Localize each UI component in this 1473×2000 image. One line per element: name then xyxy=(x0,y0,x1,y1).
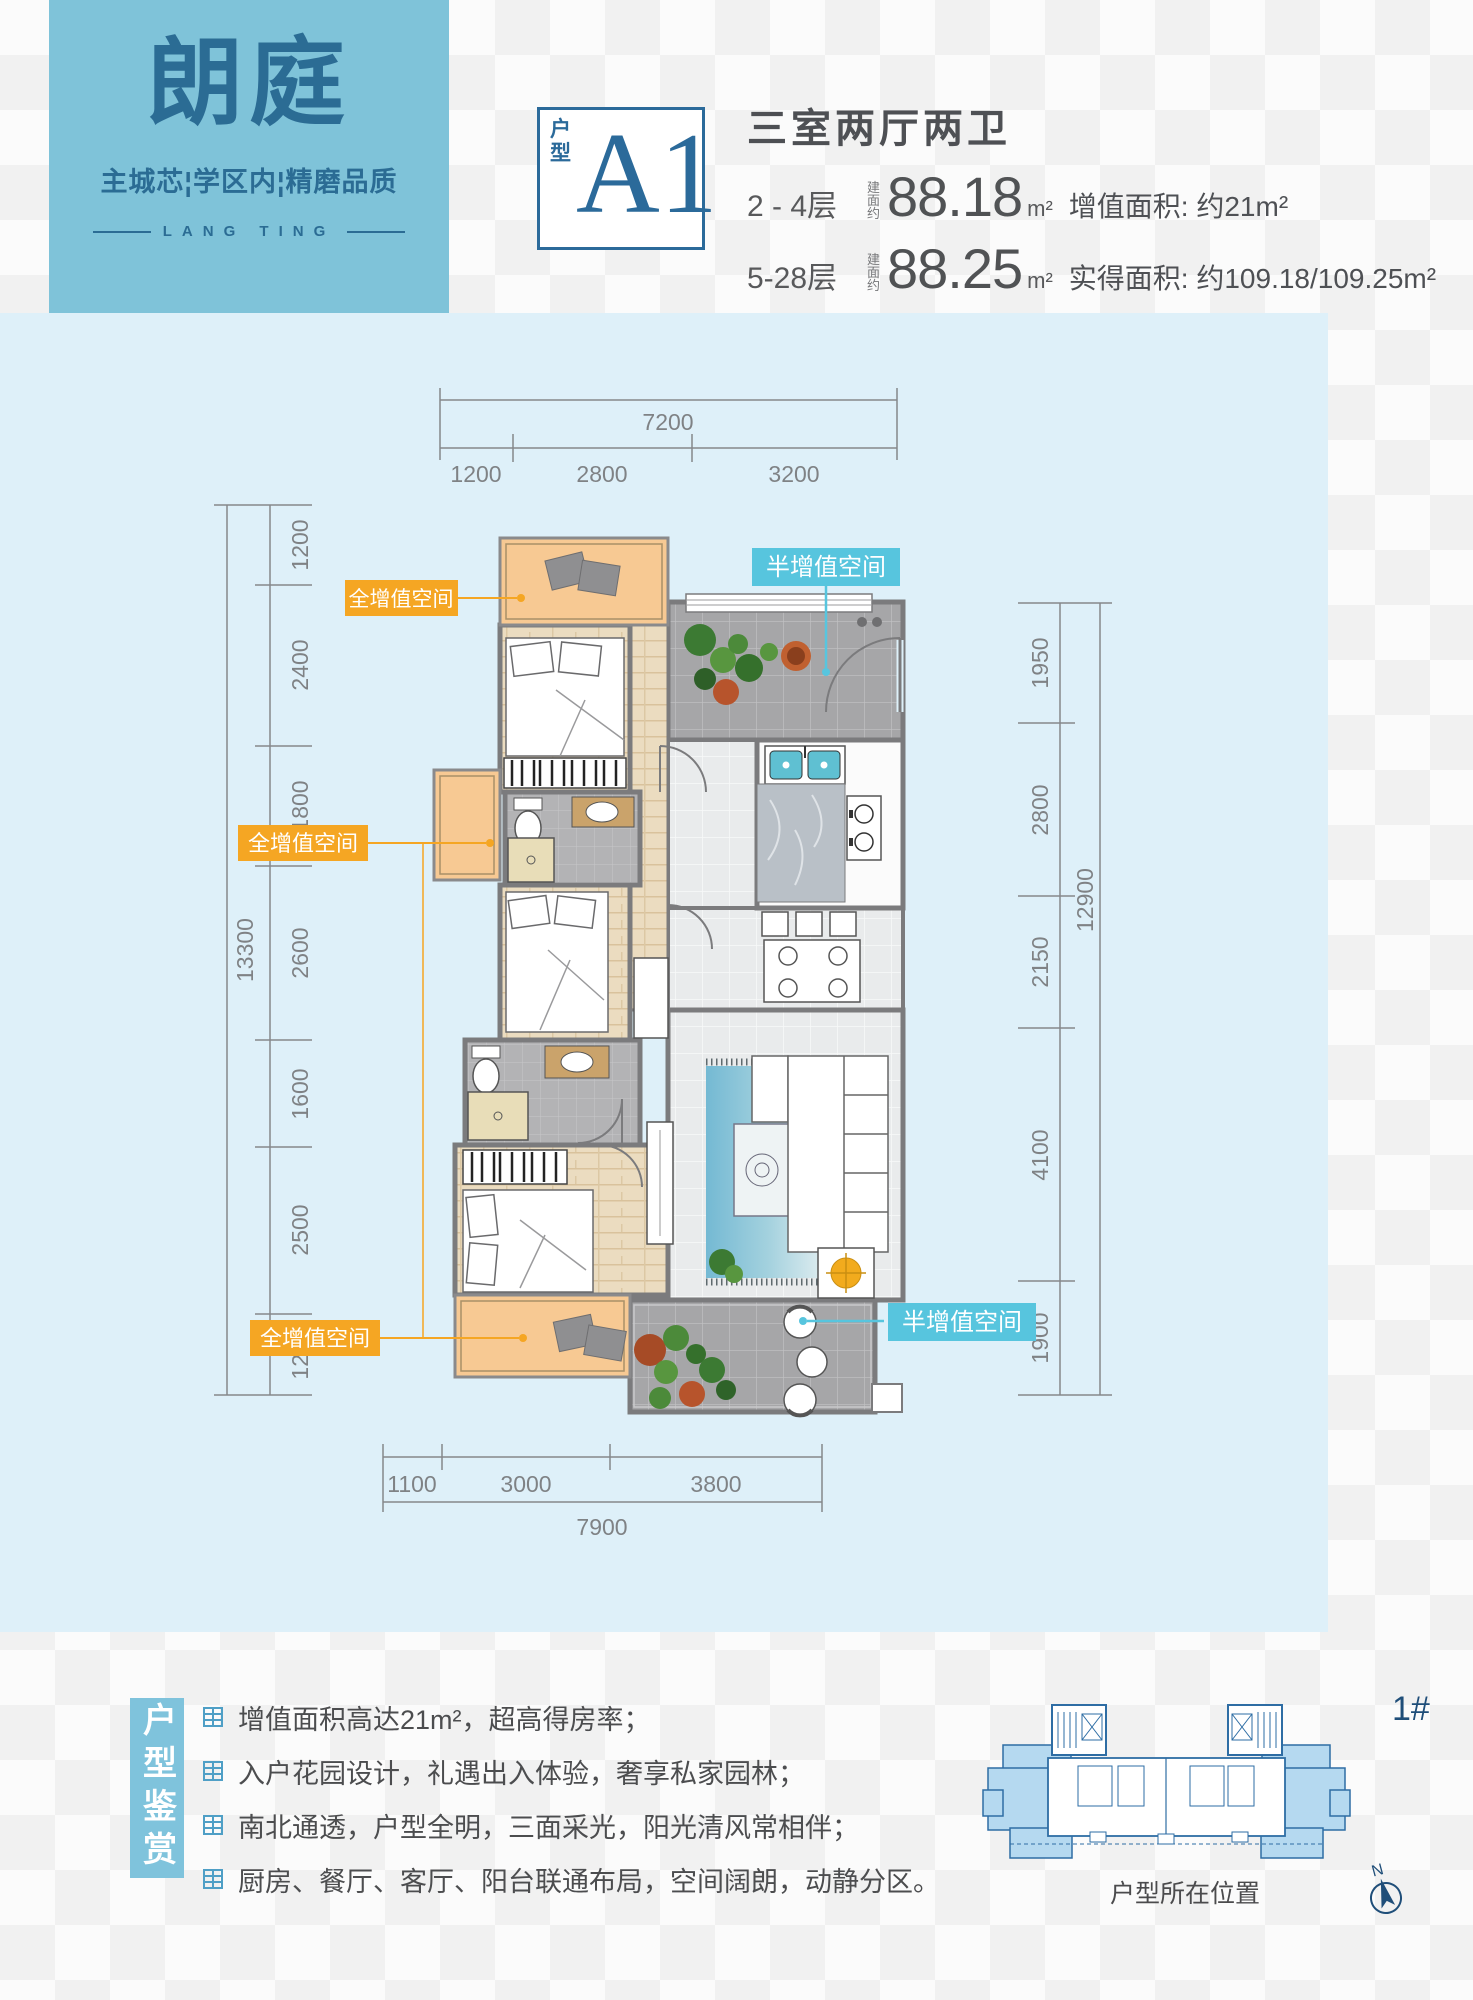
area-unit: m² xyxy=(1027,268,1053,294)
toilet-2 xyxy=(472,1046,500,1093)
compass-icon: N xyxy=(1362,1858,1404,1916)
bullet-text: 入户花园设计，礼遇出入体验，奢享私家园林； xyxy=(238,1752,805,1791)
shower-2 xyxy=(468,1092,528,1140)
area-row-2: 5-28层 建面约 88.25 m² 实得面积: 约109.18/109.25m… xyxy=(747,236,1447,298)
area-value: 88.25 xyxy=(887,236,1022,301)
floor-lamp xyxy=(818,1248,874,1298)
vanity-1 xyxy=(572,797,634,827)
appreciation-title: 户型鉴赏 xyxy=(130,1698,184,1878)
brand-latin-text: LANG TING xyxy=(163,223,336,240)
svg-text:4100: 4100 xyxy=(1027,1129,1053,1180)
dash-line xyxy=(93,231,151,233)
area-prefix: 建面约 xyxy=(867,243,882,292)
wardrobe-2 xyxy=(634,958,668,1038)
area-note: 实得面积: 约109.18/109.25m² xyxy=(1069,257,1436,297)
svg-text:全增值空间: 全增值空间 xyxy=(260,1326,370,1351)
area-unit: m² xyxy=(1027,196,1053,222)
svg-text:1950: 1950 xyxy=(1027,637,1053,688)
side-balcony xyxy=(434,770,500,880)
svg-text:1600: 1600 xyxy=(287,1068,313,1119)
svg-text:2800: 2800 xyxy=(1027,784,1053,835)
door-handle xyxy=(872,617,882,627)
dining-set xyxy=(762,912,860,1002)
svg-text:3800: 3800 xyxy=(690,1471,741,1497)
compass-north-label: N xyxy=(1370,1861,1386,1880)
bullet-text: 南北通透，户型全明，三面采光，阳光清风常相伴； xyxy=(238,1806,859,1845)
svg-text:3000: 3000 xyxy=(500,1471,551,1497)
svg-text:7200: 7200 xyxy=(642,409,693,435)
svg-text:2600: 2600 xyxy=(287,927,313,978)
stair-core-right xyxy=(1228,1705,1282,1755)
hallway xyxy=(668,740,757,908)
bed-2 xyxy=(506,892,608,1032)
bed-3 xyxy=(463,1190,593,1292)
equipment-platform xyxy=(872,1384,902,1412)
list-item: 入户花园设计，礼遇出入体验，奢享私家园林； xyxy=(203,1744,983,1798)
svg-text:2800: 2800 xyxy=(576,461,627,487)
kitchen-sink xyxy=(765,746,845,784)
area-note: 增值面积: 约21m² xyxy=(1069,185,1288,225)
list-item: 厨房、餐厅、客厅、阳台联通布局，空间阔朗，动静分区。 xyxy=(203,1852,983,1906)
svg-text:半增值空间: 半增值空间 xyxy=(766,554,886,581)
svg-text:2500: 2500 xyxy=(287,1204,313,1255)
svg-text:全增值空间: 全增值空间 xyxy=(248,831,358,856)
coffee-table xyxy=(734,1124,790,1216)
list-item: 南北通透，户型全明，三面采光，阳光清风常相伴； xyxy=(203,1798,983,1852)
floor-plan-figure: 7200 1200 2800 3200 13300 1200 2400 1800… xyxy=(160,380,1150,1540)
svg-text:1200: 1200 xyxy=(450,461,501,487)
building-outline xyxy=(1010,1758,1325,1844)
svg-text:13300: 13300 xyxy=(232,918,258,982)
unit-code: A1 xyxy=(576,94,718,254)
wardrobe-3 xyxy=(463,1150,567,1184)
grid-icon xyxy=(203,1869,223,1889)
floors-range: 2 - 4层 xyxy=(747,181,859,225)
window-band xyxy=(686,594,872,612)
svg-text:3200: 3200 xyxy=(768,461,819,487)
floors-range: 5-28层 xyxy=(747,253,859,297)
brand-box: 朗庭 主城芯¦学区内¦精磨品质 LANG TING xyxy=(49,0,449,313)
svg-text:1100: 1100 xyxy=(387,1471,436,1497)
grid-icon xyxy=(203,1707,223,1727)
brand-tagline: 主城芯¦学区内¦精磨品质 xyxy=(100,160,397,199)
svg-text:1200: 1200 xyxy=(287,519,313,570)
appreciation-list: 增值面积高达21m²，超高得房率； 入户花园设计，礼遇出入体验，奢享私家园林； … xyxy=(203,1690,983,1906)
svg-text:半增值空间: 半增值空间 xyxy=(902,1309,1022,1336)
door-handle xyxy=(857,617,867,627)
building-number: 1# xyxy=(1392,1690,1430,1728)
vanity-2 xyxy=(545,1046,609,1078)
unit-type-badge: 户型 A1 xyxy=(537,107,705,250)
building-key-plan: 1# 户型所在位置 N xyxy=(965,1655,1445,1945)
brand-name: 朗庭 xyxy=(147,34,351,134)
area-row-1: 2 - 4层 建面约 88.18 m² 增值面积: 约21m² xyxy=(747,164,1447,226)
bullet-text: 增值面积高达21m²，超高得房率； xyxy=(238,1698,651,1737)
grid-icon xyxy=(203,1815,223,1835)
bullet-text: 厨房、餐厅、客厅、阳台联通布局，空间阔朗，动静分区。 xyxy=(238,1860,940,1899)
svg-text:全增值空间: 全增值空间 xyxy=(349,588,454,611)
wardrobe-1 xyxy=(504,758,626,788)
unit-type-label: 户型 xyxy=(550,118,576,166)
keyplan-caption: 户型所在位置 xyxy=(1110,1880,1260,1908)
floor-plan xyxy=(434,538,903,1416)
brochure-page: 朗庭 主城芯¦学区内¦精磨品质 LANG TING 户型 A1 三室两厅两卫 2… xyxy=(0,0,1473,2000)
grid-icon xyxy=(203,1761,223,1781)
stair-core-left xyxy=(1052,1705,1106,1755)
svg-text:2400: 2400 xyxy=(287,639,313,690)
area-value: 88.18 xyxy=(887,164,1022,229)
svg-text:7900: 7900 xyxy=(576,1514,627,1540)
brand-latin: LANG TING xyxy=(93,223,406,240)
svg-text:12900: 12900 xyxy=(1072,868,1098,932)
bed-1 xyxy=(506,638,624,756)
layout-title: 三室两厅两卫 xyxy=(747,96,1447,154)
stove xyxy=(847,796,881,860)
svg-text:2150: 2150 xyxy=(1027,936,1053,987)
area-prefix: 建面约 xyxy=(867,171,882,220)
header-info: 三室两厅两卫 2 - 4层 建面约 88.18 m² 增值面积: 约21m² 5… xyxy=(747,96,1447,298)
list-item: 增值面积高达21m²，超高得房率； xyxy=(203,1690,983,1744)
shower-1 xyxy=(508,838,554,882)
svg-text:1800: 1800 xyxy=(287,780,313,831)
dash-line xyxy=(347,231,405,233)
